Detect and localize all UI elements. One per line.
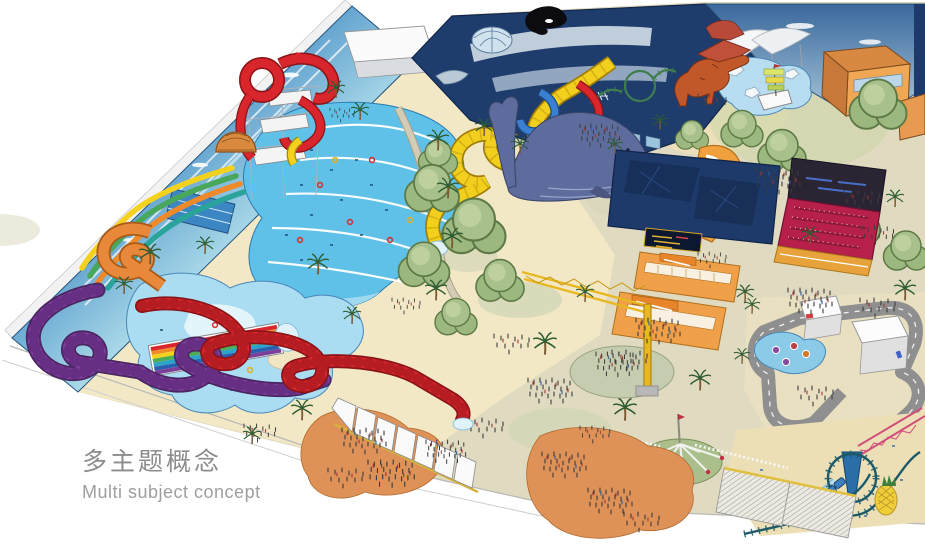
caption-block: 多主题概念 Multi subject concept xyxy=(82,442,261,503)
crane-queue-area xyxy=(570,346,674,398)
caption-subtitle-en: Multi subject concept xyxy=(82,482,261,503)
caption-title-zh: 多主题概念 xyxy=(82,442,261,478)
concept-rendering-page: 多主题概念 Multi subject concept xyxy=(0,0,925,544)
red-amphitheater xyxy=(774,158,886,276)
